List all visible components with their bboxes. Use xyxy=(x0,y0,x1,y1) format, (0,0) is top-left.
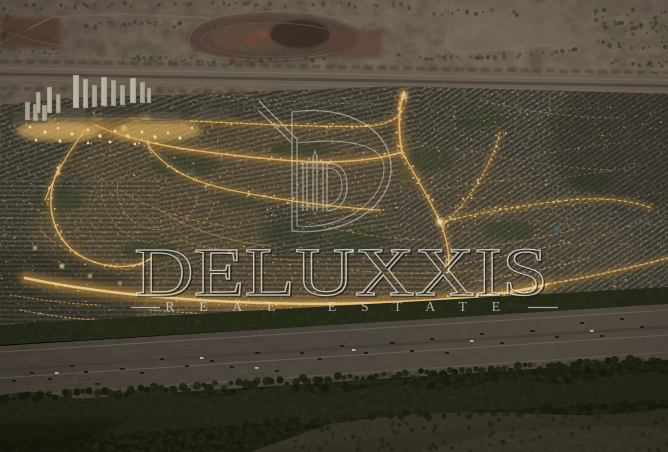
svg-text:REAL ESTATE: REAL ESTATE xyxy=(165,300,525,315)
svg-text:DELUXXIS: DELUXXIS xyxy=(134,234,548,310)
